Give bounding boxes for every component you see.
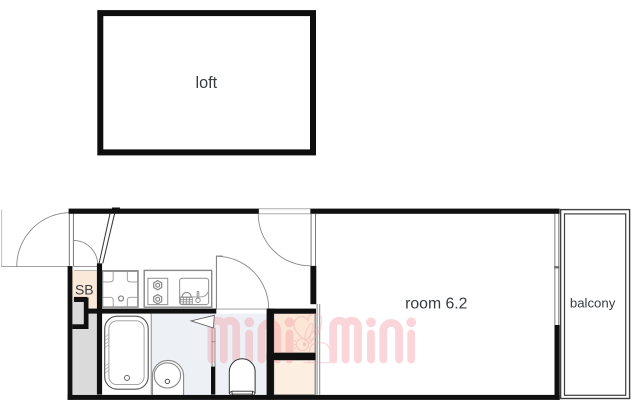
svg-text:SB: SB bbox=[75, 282, 94, 298]
svg-text:room 6.2: room 6.2 bbox=[405, 296, 467, 313]
svg-text:balcony: balcony bbox=[570, 296, 616, 311]
svg-text:loft: loft bbox=[195, 74, 217, 92]
